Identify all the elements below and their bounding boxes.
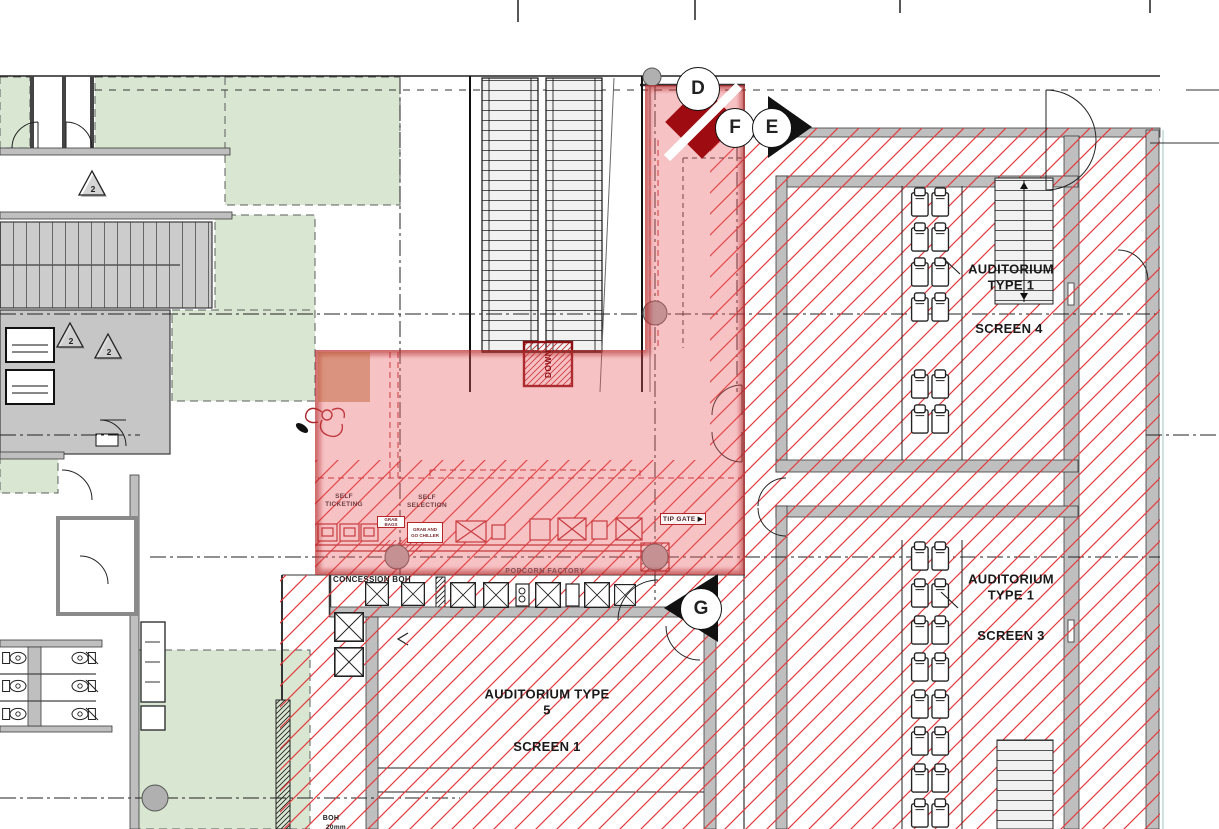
- boh-label: BOH: [323, 815, 339, 823]
- elevator-block: [0, 310, 170, 454]
- revision-2-marker: 2: [107, 347, 112, 357]
- revision-2-marker: 2: [91, 184, 96, 194]
- auditorium-screen1-name: AUDITORIUM TYPE 5: [481, 686, 613, 717]
- grab-bags-label: GRAB BAGS: [377, 516, 405, 528]
- auditorium-screen3-screen: SCREEN 3: [977, 628, 1044, 644]
- self-ticketing-label: SELF TICKETING: [321, 493, 367, 509]
- down-label: DOWN: [543, 350, 553, 378]
- grid-bubble-g: G: [680, 588, 722, 630]
- floorplan-canvas: AUDITORIUM TYPE 1 SCREEN 4 AUDITORIUM TY…: [0, 0, 1219, 829]
- tip-gate-text: TIP GATE: [663, 516, 696, 523]
- auditorium-screen4-name: AUDITORIUM TYPE 1: [955, 261, 1067, 292]
- grid-ticks: [518, 0, 1150, 22]
- escalators: [470, 76, 650, 392]
- grab-and-go-chiller-label: GRAB AND GO CHILLER: [407, 522, 443, 543]
- auditorium-screen4-screen: SCREEN 4: [975, 321, 1042, 337]
- grid-bubble-e: E: [752, 108, 792, 148]
- auditorium-screen3-name: AUDITORIUM TYPE 1: [955, 571, 1067, 602]
- markup-highlight-square[interactable]: [318, 352, 370, 402]
- popcorn-factory-label: POPCORN FACTORY: [505, 568, 584, 576]
- grid-bubble-f: F: [715, 108, 755, 148]
- grid-bubble-d: D: [676, 67, 720, 111]
- revision-2-marker: 2: [69, 336, 74, 346]
- auditorium-screen1-screen: SCREEN 1: [513, 739, 580, 755]
- concession-boh-label: CONCESSION BOH: [333, 575, 411, 585]
- tip-gate-arrow-icon: ▶: [698, 516, 703, 523]
- self-selection-label: SELF SELECTION: [404, 494, 450, 510]
- tip-gate-label: TIP GATE ▶: [660, 513, 706, 525]
- room-mid-left: [58, 518, 136, 614]
- boh-note-label: 20mm: [326, 824, 346, 829]
